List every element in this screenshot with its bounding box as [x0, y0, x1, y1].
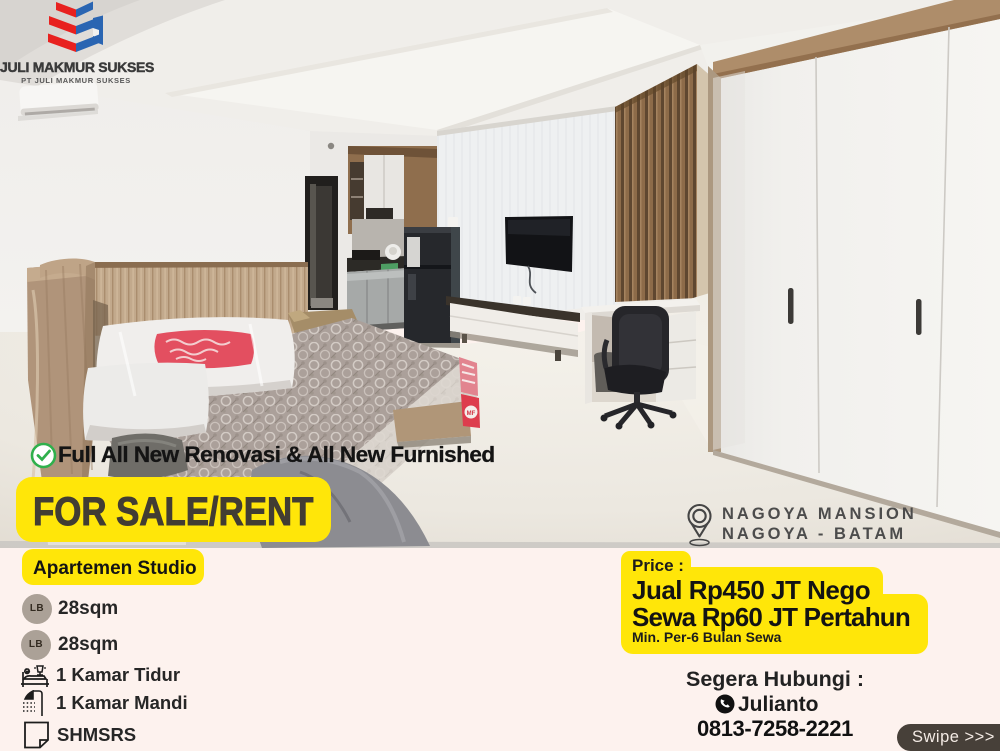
svg-text:MF: MF [467, 411, 476, 417]
